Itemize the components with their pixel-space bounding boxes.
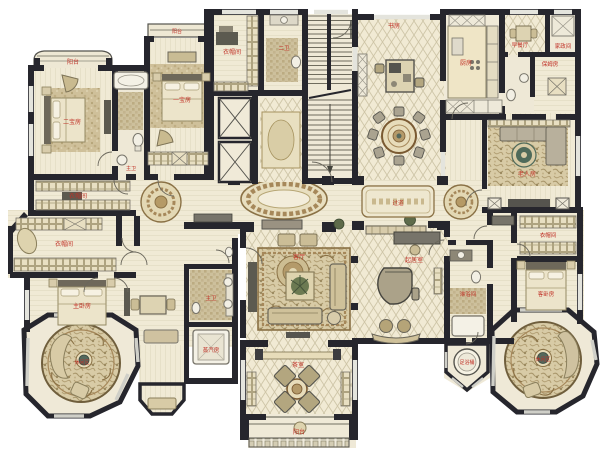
svg-text:厨房: 厨房 bbox=[460, 59, 472, 67]
svg-text:足浴桶: 足浴桶 bbox=[459, 359, 474, 366]
svg-text:淋浴间: 淋浴间 bbox=[460, 290, 477, 298]
svg-text:主卧房: 主卧房 bbox=[73, 302, 91, 310]
svg-text:老人房: 老人房 bbox=[518, 170, 536, 178]
svg-text:一宝房: 一宝房 bbox=[173, 96, 191, 104]
svg-text:衣帽间: 衣帽间 bbox=[69, 192, 87, 200]
svg-text:客卧房: 客卧房 bbox=[538, 290, 555, 298]
svg-text:阳台: 阳台 bbox=[172, 28, 182, 35]
svg-text:茶室: 茶室 bbox=[292, 361, 304, 369]
svg-text:起居室: 起居室 bbox=[405, 256, 423, 264]
svg-text:二卫: 二卫 bbox=[278, 45, 290, 52]
svg-text:阳台: 阳台 bbox=[293, 428, 305, 436]
svg-text:衣帽间: 衣帽间 bbox=[540, 231, 557, 239]
svg-text:二宝房: 二宝房 bbox=[63, 118, 81, 126]
svg-text:衣帽间: 衣帽间 bbox=[55, 240, 73, 248]
svg-text:书房: 书房 bbox=[388, 22, 400, 30]
svg-text:主卫: 主卫 bbox=[205, 294, 217, 302]
svg-text:家政间: 家政间 bbox=[555, 42, 572, 50]
svg-text:阳台: 阳台 bbox=[67, 58, 79, 66]
svg-text:主卫: 主卫 bbox=[126, 165, 136, 172]
svg-text:客厅: 客厅 bbox=[293, 253, 305, 261]
svg-text:休闲区: 休闲区 bbox=[535, 356, 550, 363]
svg-text:早餐厅: 早餐厅 bbox=[512, 41, 529, 49]
svg-text:保姆房: 保姆房 bbox=[542, 60, 559, 68]
svg-text:过道: 过道 bbox=[392, 199, 404, 207]
svg-text:休闲区: 休闲区 bbox=[74, 359, 89, 366]
svg-text:蒸汽房: 蒸汽房 bbox=[203, 346, 220, 354]
svg-text:衣帽间: 衣帽间 bbox=[223, 48, 241, 56]
